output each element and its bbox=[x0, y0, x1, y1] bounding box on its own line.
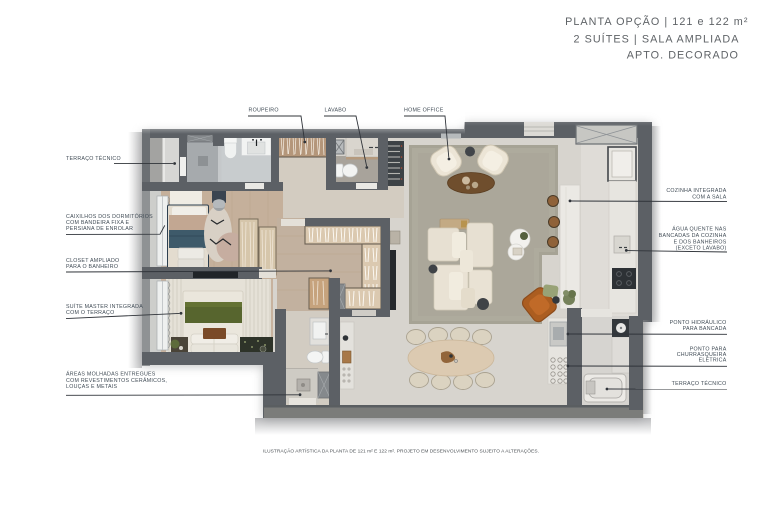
svg-text:COM A SALA: COM A SALA bbox=[692, 195, 727, 201]
svg-text:ÁREAS MOLHADAS ENTREGUES: ÁREAS MOLHADAS ENTREGUES bbox=[66, 371, 156, 378]
svg-text:PONTO HIDRÁULICO: PONTO HIDRÁULICO bbox=[670, 319, 727, 326]
svg-text:2 SUÍTES | SALA AMPLIADA: 2 SUÍTES | SALA AMPLIADA bbox=[573, 33, 739, 46]
svg-text:CLOSET AMPLIADO: CLOSET AMPLIADO bbox=[66, 258, 119, 264]
svg-text:ROUPEIRO: ROUPEIRO bbox=[249, 108, 279, 114]
svg-text:PARA O BANHEIRO: PARA O BANHEIRO bbox=[66, 264, 118, 270]
svg-text:SUÍTE MASTER INTEGRADA: SUÍTE MASTER INTEGRADA bbox=[66, 303, 143, 310]
svg-text:COM O TERRAÇO: COM O TERRAÇO bbox=[66, 310, 114, 316]
svg-text:CAIXILHOS DOS DORMITÓRIOS: CAIXILHOS DOS DORMITÓRIOS bbox=[66, 213, 153, 220]
svg-text:APTO. DECORADO: APTO. DECORADO bbox=[627, 50, 739, 62]
svg-text:LAVABO: LAVABO bbox=[325, 108, 347, 114]
svg-text:COM REVESTIMENTOS CERÂMICOS,: COM REVESTIMENTOS CERÂMICOS, bbox=[66, 377, 167, 384]
svg-text:(EXCETO LAVABO): (EXCETO LAVABO) bbox=[676, 245, 727, 251]
svg-text:PERSIANA DE ENROLAR: PERSIANA DE ENROLAR bbox=[66, 226, 133, 232]
svg-text:LOUÇAS E METAIS: LOUÇAS E METAIS bbox=[66, 384, 118, 390]
svg-text:ILUSTRAÇÃO ARTÍSTICA DA PLANTA: ILUSTRAÇÃO ARTÍSTICA DA PLANTA DE 121 m²… bbox=[263, 448, 539, 455]
svg-text:COZINHA INTEGRADA: COZINHA INTEGRADA bbox=[666, 188, 726, 194]
svg-text:ELÉTRICA: ELÉTRICA bbox=[699, 357, 727, 364]
svg-text:COM BANDEIRA FIXA E: COM BANDEIRA FIXA E bbox=[66, 220, 130, 226]
svg-text:TERRAÇO TÉCNICO: TERRAÇO TÉCNICO bbox=[672, 380, 727, 387]
svg-text:ÁGUA QUENTE NAS: ÁGUA QUENTE NAS bbox=[672, 226, 727, 233]
svg-text:TERRAÇO TÉCNICO: TERRAÇO TÉCNICO bbox=[66, 155, 121, 162]
svg-text:PLANTA OPÇÃO | 121 e 122 m²: PLANTA OPÇÃO | 121 e 122 m² bbox=[565, 15, 748, 28]
svg-text:BANCADAS DA COZINHA: BANCADAS DA COZINHA bbox=[659, 233, 727, 239]
svg-text:PARA BANCADA: PARA BANCADA bbox=[683, 326, 727, 332]
svg-text:HOME OFFICE: HOME OFFICE bbox=[404, 108, 444, 114]
